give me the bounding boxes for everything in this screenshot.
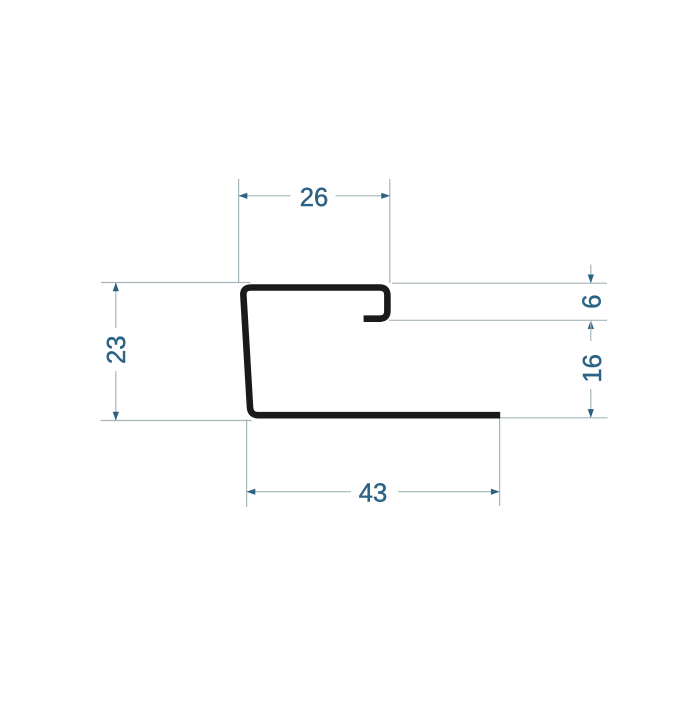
svg-text:23: 23: [103, 336, 131, 364]
svg-text:43: 43: [359, 479, 387, 507]
svg-text:26: 26: [300, 184, 328, 212]
svg-text:6: 6: [579, 295, 607, 309]
svg-text:16: 16: [579, 354, 607, 382]
